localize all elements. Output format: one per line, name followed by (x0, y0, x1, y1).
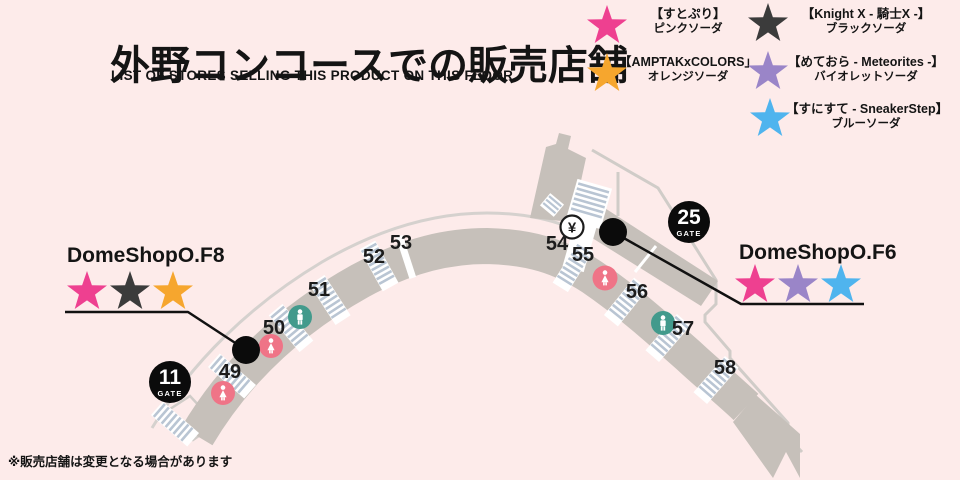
section-number: 56 (626, 281, 648, 303)
floor-map-poster: 外野コンコースでの販売店舗 LIST OF STORES SELLING THI… (0, 0, 960, 480)
shop-name-f8: DomeShopO.F8 (67, 244, 225, 268)
star-icon (821, 264, 861, 302)
section-number: 55 (572, 244, 594, 266)
restroom-women-icon (211, 381, 235, 405)
disclaimer-note: ※販売店舗は変更となる場合があります (8, 451, 232, 470)
gate-number: 25 (677, 206, 701, 229)
section-number: 54 (546, 233, 569, 255)
star-icon (735, 264, 775, 302)
star-icon (778, 264, 818, 302)
gate-number: 11 (159, 366, 182, 389)
shop-f6-stars (734, 263, 874, 307)
section-number: 53 (390, 232, 412, 254)
restroom-women-icon (593, 266, 618, 291)
star-icon (67, 271, 107, 309)
gate-label: GATE (676, 229, 701, 238)
star-icon (110, 271, 150, 309)
shop-name-f6: DomeShopO.F6 (739, 241, 897, 265)
gate-11-badge: 11 GATE (149, 361, 191, 403)
shop-location-dot-f8 (232, 336, 260, 364)
shop-f8-stars (66, 270, 206, 314)
star-icon (153, 271, 193, 309)
shop-location-dot-f6 (599, 218, 627, 246)
section-number: 58 (714, 357, 736, 379)
restroom-men-icon (288, 305, 312, 329)
section-number: 52 (363, 246, 385, 268)
section-number: 50 (263, 317, 285, 339)
gate-25-badge: 25 GATE (668, 201, 710, 243)
svg-text:¥: ¥ (568, 220, 577, 237)
gate-label: GATE (157, 389, 182, 398)
section-number: 49 (219, 361, 241, 383)
section-number: 51 (308, 279, 330, 301)
section-number: 57 (672, 318, 694, 340)
concourse-map: ¥ 11 GATE 25 GATE 49 50 51 52 53 54 55 5 (0, 0, 960, 480)
